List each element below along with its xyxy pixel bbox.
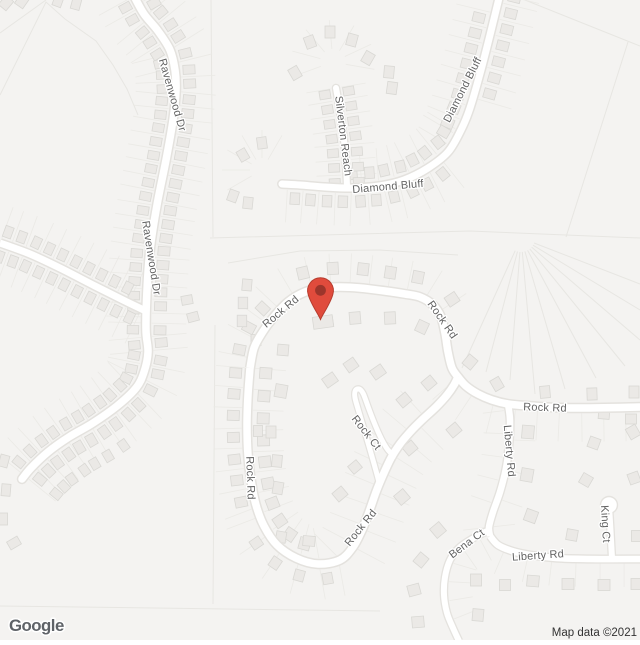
svg-text:Google: Google: [9, 616, 64, 635]
svg-text:King Ct: King Ct: [598, 505, 612, 543]
svg-text:Rock Rd: Rock Rd: [243, 456, 257, 500]
svg-text:Map data ©2021: Map data ©2021: [552, 627, 637, 639]
svg-text:Rock Rd: Rock Rd: [523, 401, 567, 415]
